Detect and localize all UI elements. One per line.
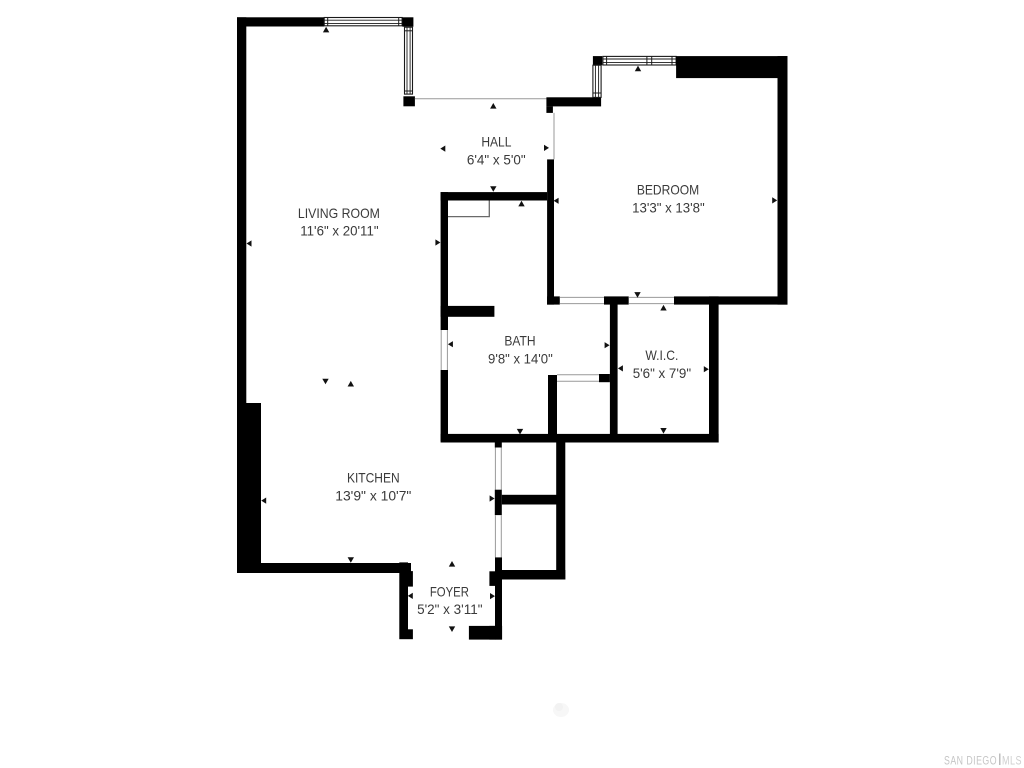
- svg-text:BATH: BATH: [504, 333, 535, 348]
- svg-text:W.I.C.: W.I.C.: [645, 348, 678, 363]
- svg-text:SAN DIEGO: SAN DIEGO: [944, 756, 997, 768]
- svg-text:BEDROOM: BEDROOM: [637, 182, 699, 197]
- svg-text:LIVING ROOM: LIVING ROOM: [298, 206, 380, 221]
- svg-text:13'9" x 10'7": 13'9" x 10'7": [335, 489, 411, 504]
- svg-text:9'8" x 14'0": 9'8" x 14'0": [488, 351, 553, 366]
- svg-text:11'6" x 20'11": 11'6" x 20'11": [300, 224, 378, 239]
- svg-text:5'6" x 7'9": 5'6" x 7'9": [633, 366, 691, 381]
- svg-text:5'2" x 3'11": 5'2" x 3'11": [417, 602, 482, 617]
- svg-text:13'3" x 13'8": 13'3" x 13'8": [632, 200, 705, 215]
- svg-text:MLS: MLS: [1002, 756, 1022, 768]
- svg-text:HALL: HALL: [481, 134, 511, 149]
- svg-text:FOYER: FOYER: [430, 585, 469, 600]
- svg-text:KITCHEN: KITCHEN: [347, 471, 400, 486]
- svg-text:6'4" x 5'0": 6'4" x 5'0": [467, 152, 526, 167]
